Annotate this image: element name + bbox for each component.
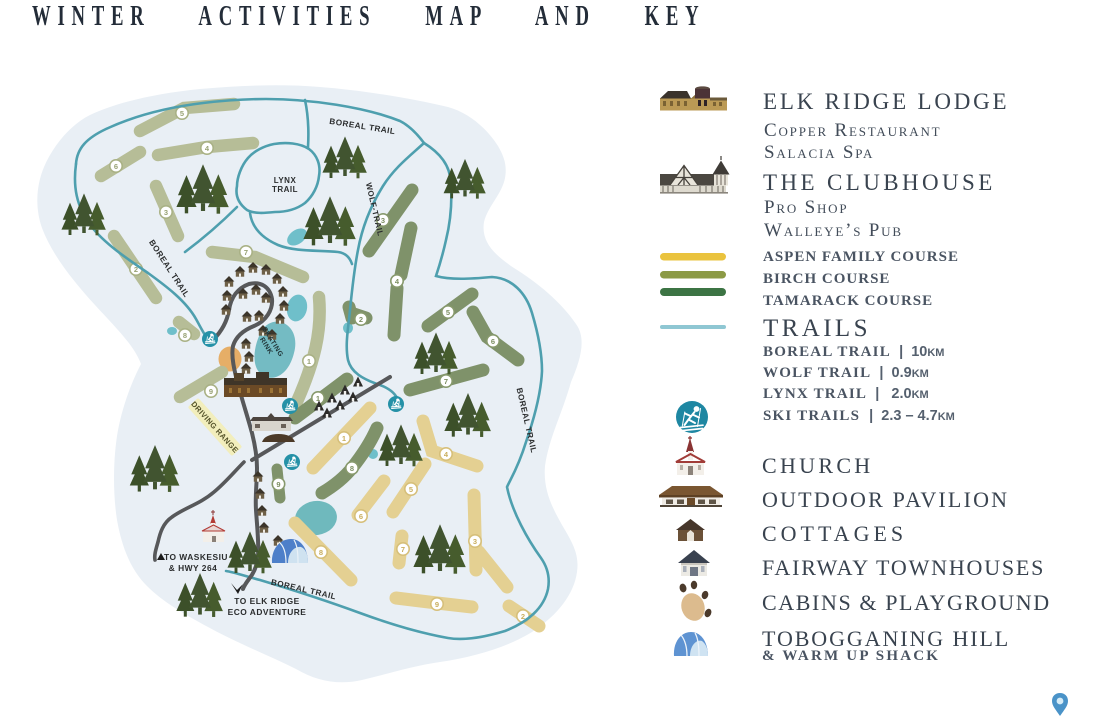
svg-text:7: 7 xyxy=(244,248,248,257)
svg-text:6: 6 xyxy=(491,337,495,346)
svg-text:LYNX: LYNX xyxy=(274,176,297,185)
svg-text:& HWY 264: & HWY 264 xyxy=(169,563,218,573)
svg-text:2: 2 xyxy=(359,315,363,324)
svg-text:5: 5 xyxy=(446,308,450,317)
svg-text:TO WASKESIU: TO WASKESIU xyxy=(164,552,228,562)
svg-text:6: 6 xyxy=(114,162,118,171)
svg-text:9: 9 xyxy=(435,600,439,609)
svg-text:8: 8 xyxy=(319,548,323,557)
svg-text:ECO ADVENTURE: ECO ADVENTURE xyxy=(228,607,307,617)
svg-text:8: 8 xyxy=(183,331,187,340)
svg-text:8: 8 xyxy=(350,464,354,473)
svg-text:3: 3 xyxy=(473,537,477,546)
svg-text:1: 1 xyxy=(307,357,311,366)
svg-text:1: 1 xyxy=(342,434,346,443)
svg-text:7: 7 xyxy=(444,377,448,386)
svg-text:9: 9 xyxy=(209,387,213,396)
svg-text:5: 5 xyxy=(409,485,413,494)
svg-text:2: 2 xyxy=(521,612,525,621)
svg-text:5: 5 xyxy=(180,109,184,118)
svg-text:3: 3 xyxy=(164,208,168,217)
svg-text:7: 7 xyxy=(401,545,405,554)
svg-text:TRAIL: TRAIL xyxy=(272,185,298,194)
svg-text:6: 6 xyxy=(359,512,363,521)
svg-text:9: 9 xyxy=(276,480,280,489)
svg-text:TO ELK RIDGE: TO ELK RIDGE xyxy=(234,596,299,606)
